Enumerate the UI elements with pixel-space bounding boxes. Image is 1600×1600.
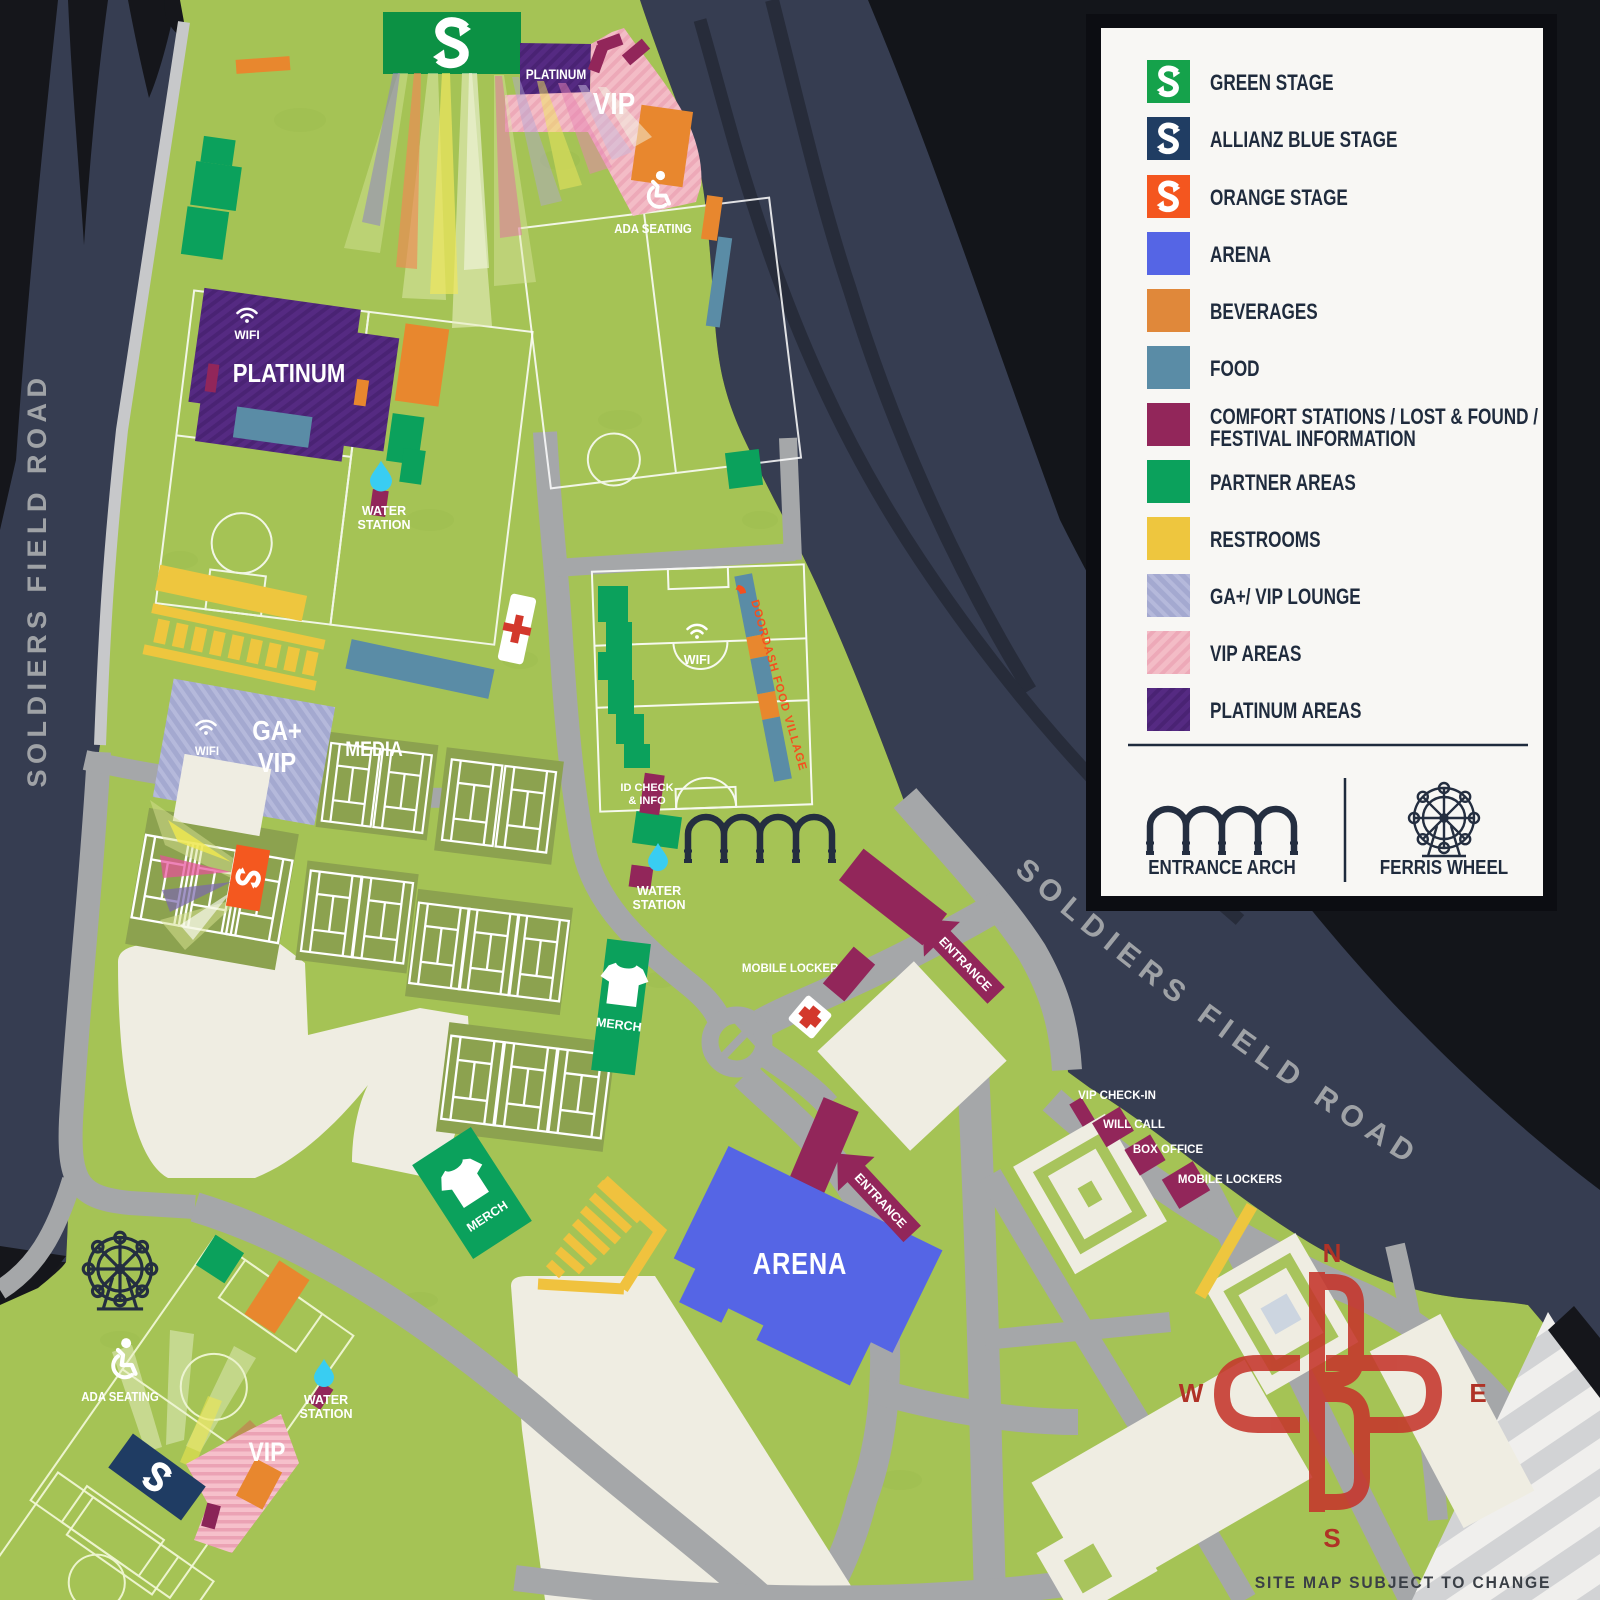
svg-text:S: S: [1323, 1523, 1340, 1553]
svg-text:COMFORT STATIONS / LOST & FOUN: COMFORT STATIONS / LOST & FOUND /: [1210, 405, 1539, 430]
svg-text:BEVERAGES: BEVERAGES: [1210, 300, 1318, 325]
svg-text:MOBILE LOCKERS: MOBILE LOCKERS: [742, 963, 846, 975]
svg-text:FESTIVAL INFORMATION: FESTIVAL INFORMATION: [1210, 427, 1416, 452]
svg-text:WATER: WATER: [637, 884, 681, 898]
svg-text:PLATINUM AREAS: PLATINUM AREAS: [1210, 699, 1362, 724]
svg-text:ENTRANCE ARCH: ENTRANCE ARCH: [1148, 856, 1296, 879]
svg-text:VIP CHECK-IN: VIP CHECK-IN: [1078, 1090, 1156, 1102]
svg-text:RESTROOMS: RESTROOMS: [1210, 528, 1321, 553]
svg-text:MEDIA: MEDIA: [345, 738, 402, 762]
svg-text:VIP: VIP: [249, 1437, 286, 1467]
svg-text:STATION: STATION: [299, 1407, 352, 1421]
svg-text:STATION: STATION: [632, 898, 685, 912]
svg-text:GA+: GA+: [252, 714, 302, 746]
svg-text:VIP AREAS: VIP AREAS: [1210, 642, 1302, 667]
svg-text:STATION: STATION: [357, 518, 410, 532]
svg-text:WATER: WATER: [304, 1393, 348, 1407]
svg-text:ADA SEATING: ADA SEATING: [81, 1389, 158, 1404]
svg-text:PLATINUM: PLATINUM: [233, 359, 345, 388]
svg-text:WIFI: WIFI: [195, 746, 219, 758]
svg-text:ARENA: ARENA: [753, 1247, 847, 1282]
svg-text:WIFI: WIFI: [234, 328, 259, 342]
svg-text:ALLIANZ BLUE STAGE: ALLIANZ BLUE STAGE: [1210, 128, 1397, 153]
svg-text:W: W: [1179, 1378, 1204, 1408]
svg-text:SOLDIERS FIELD ROAD: SOLDIERS FIELD ROAD: [22, 372, 52, 787]
svg-text:GA+/ VIP LOUNGE: GA+/ VIP LOUNGE: [1210, 585, 1361, 610]
svg-text:N: N: [1323, 1238, 1342, 1268]
svg-text:& INFO: & INFO: [628, 795, 666, 807]
svg-text:ORANGE STAGE: ORANGE STAGE: [1210, 186, 1348, 211]
svg-text:ID CHECK: ID CHECK: [620, 782, 673, 794]
svg-text:GREEN STAGE: GREEN STAGE: [1210, 71, 1334, 96]
svg-text:WATER: WATER: [362, 504, 406, 518]
svg-text:WIFI: WIFI: [684, 653, 710, 667]
svg-text:PARTNER AREAS: PARTNER AREAS: [1210, 471, 1356, 496]
svg-text:WILL CALL: WILL CALL: [1103, 1119, 1165, 1131]
svg-text:BOX OFFICE: BOX OFFICE: [1133, 1144, 1204, 1156]
svg-text:ADA SEATING: ADA SEATING: [614, 221, 691, 236]
svg-text:E: E: [1469, 1378, 1486, 1408]
svg-text:FERRIS WHEEL: FERRIS WHEEL: [1380, 856, 1508, 879]
svg-text:SITE MAP SUBJECT TO CHANGE: SITE MAP SUBJECT TO CHANGE: [1255, 1573, 1552, 1592]
svg-text:PLATINUM: PLATINUM: [526, 66, 587, 82]
svg-text:FOOD: FOOD: [1210, 357, 1260, 382]
svg-text:VIP: VIP: [593, 87, 635, 121]
svg-text:MOBILE LOCKERS: MOBILE LOCKERS: [1178, 1174, 1282, 1186]
svg-text:ARENA: ARENA: [1210, 243, 1271, 268]
svg-text:VIP: VIP: [258, 746, 296, 778]
